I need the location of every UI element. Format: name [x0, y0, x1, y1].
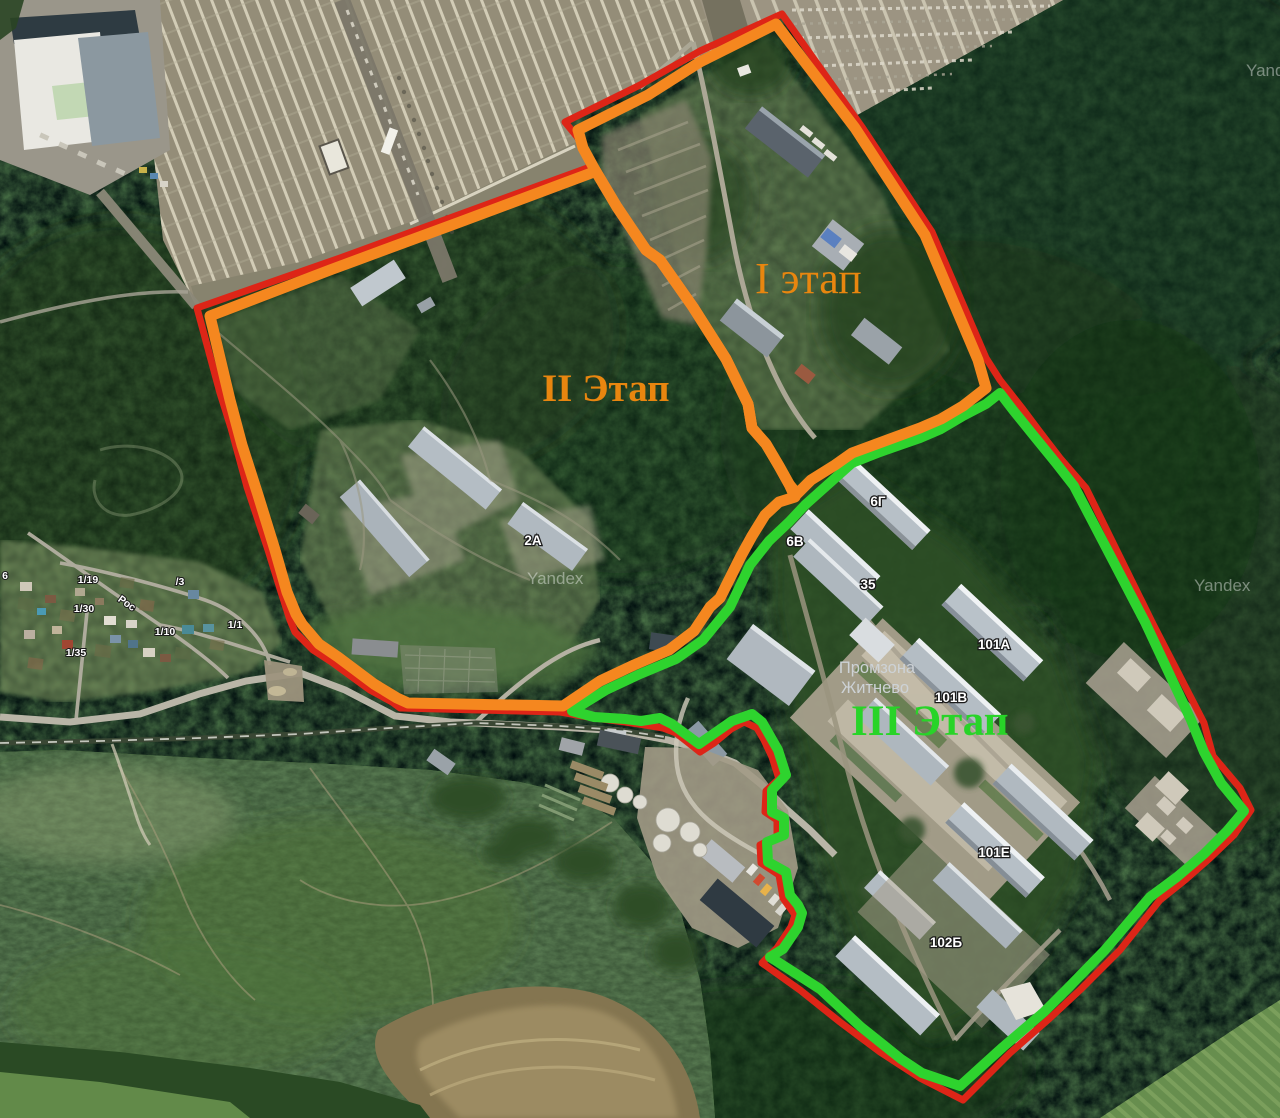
svg-text:101Е: 101Е [978, 845, 1010, 860]
svg-text:/3: /3 [176, 576, 185, 588]
svg-text:1/30: 1/30 [74, 603, 95, 615]
svg-text:1/10: 1/10 [155, 626, 176, 638]
svg-text:III Этап: III Этап [851, 698, 1008, 745]
svg-text:6: 6 [2, 570, 8, 582]
svg-text:1/1: 1/1 [228, 619, 243, 631]
svg-text:1/19: 1/19 [78, 574, 99, 586]
svg-text:Промзона: Промзона [839, 659, 916, 677]
svg-text:101В: 101В [935, 690, 968, 705]
svg-text:6В: 6В [786, 534, 804, 549]
svg-text:II Этап: II Этап [542, 367, 670, 410]
svg-text:I этап: I этап [755, 254, 862, 303]
svg-text:Yandex: Yandex [1194, 576, 1251, 595]
svg-text:101А: 101А [978, 637, 1011, 652]
svg-text:2А: 2А [524, 533, 542, 548]
svg-text:Yande: Yande [1246, 61, 1280, 80]
svg-text:1/35: 1/35 [66, 647, 87, 659]
svg-text:6Г: 6Г [870, 494, 886, 509]
svg-text:Житнево: Житнево [841, 679, 909, 697]
svg-text:35: 35 [860, 577, 876, 592]
svg-text:102Б: 102Б [930, 935, 963, 950]
svg-text:Yandex: Yandex [527, 569, 584, 588]
